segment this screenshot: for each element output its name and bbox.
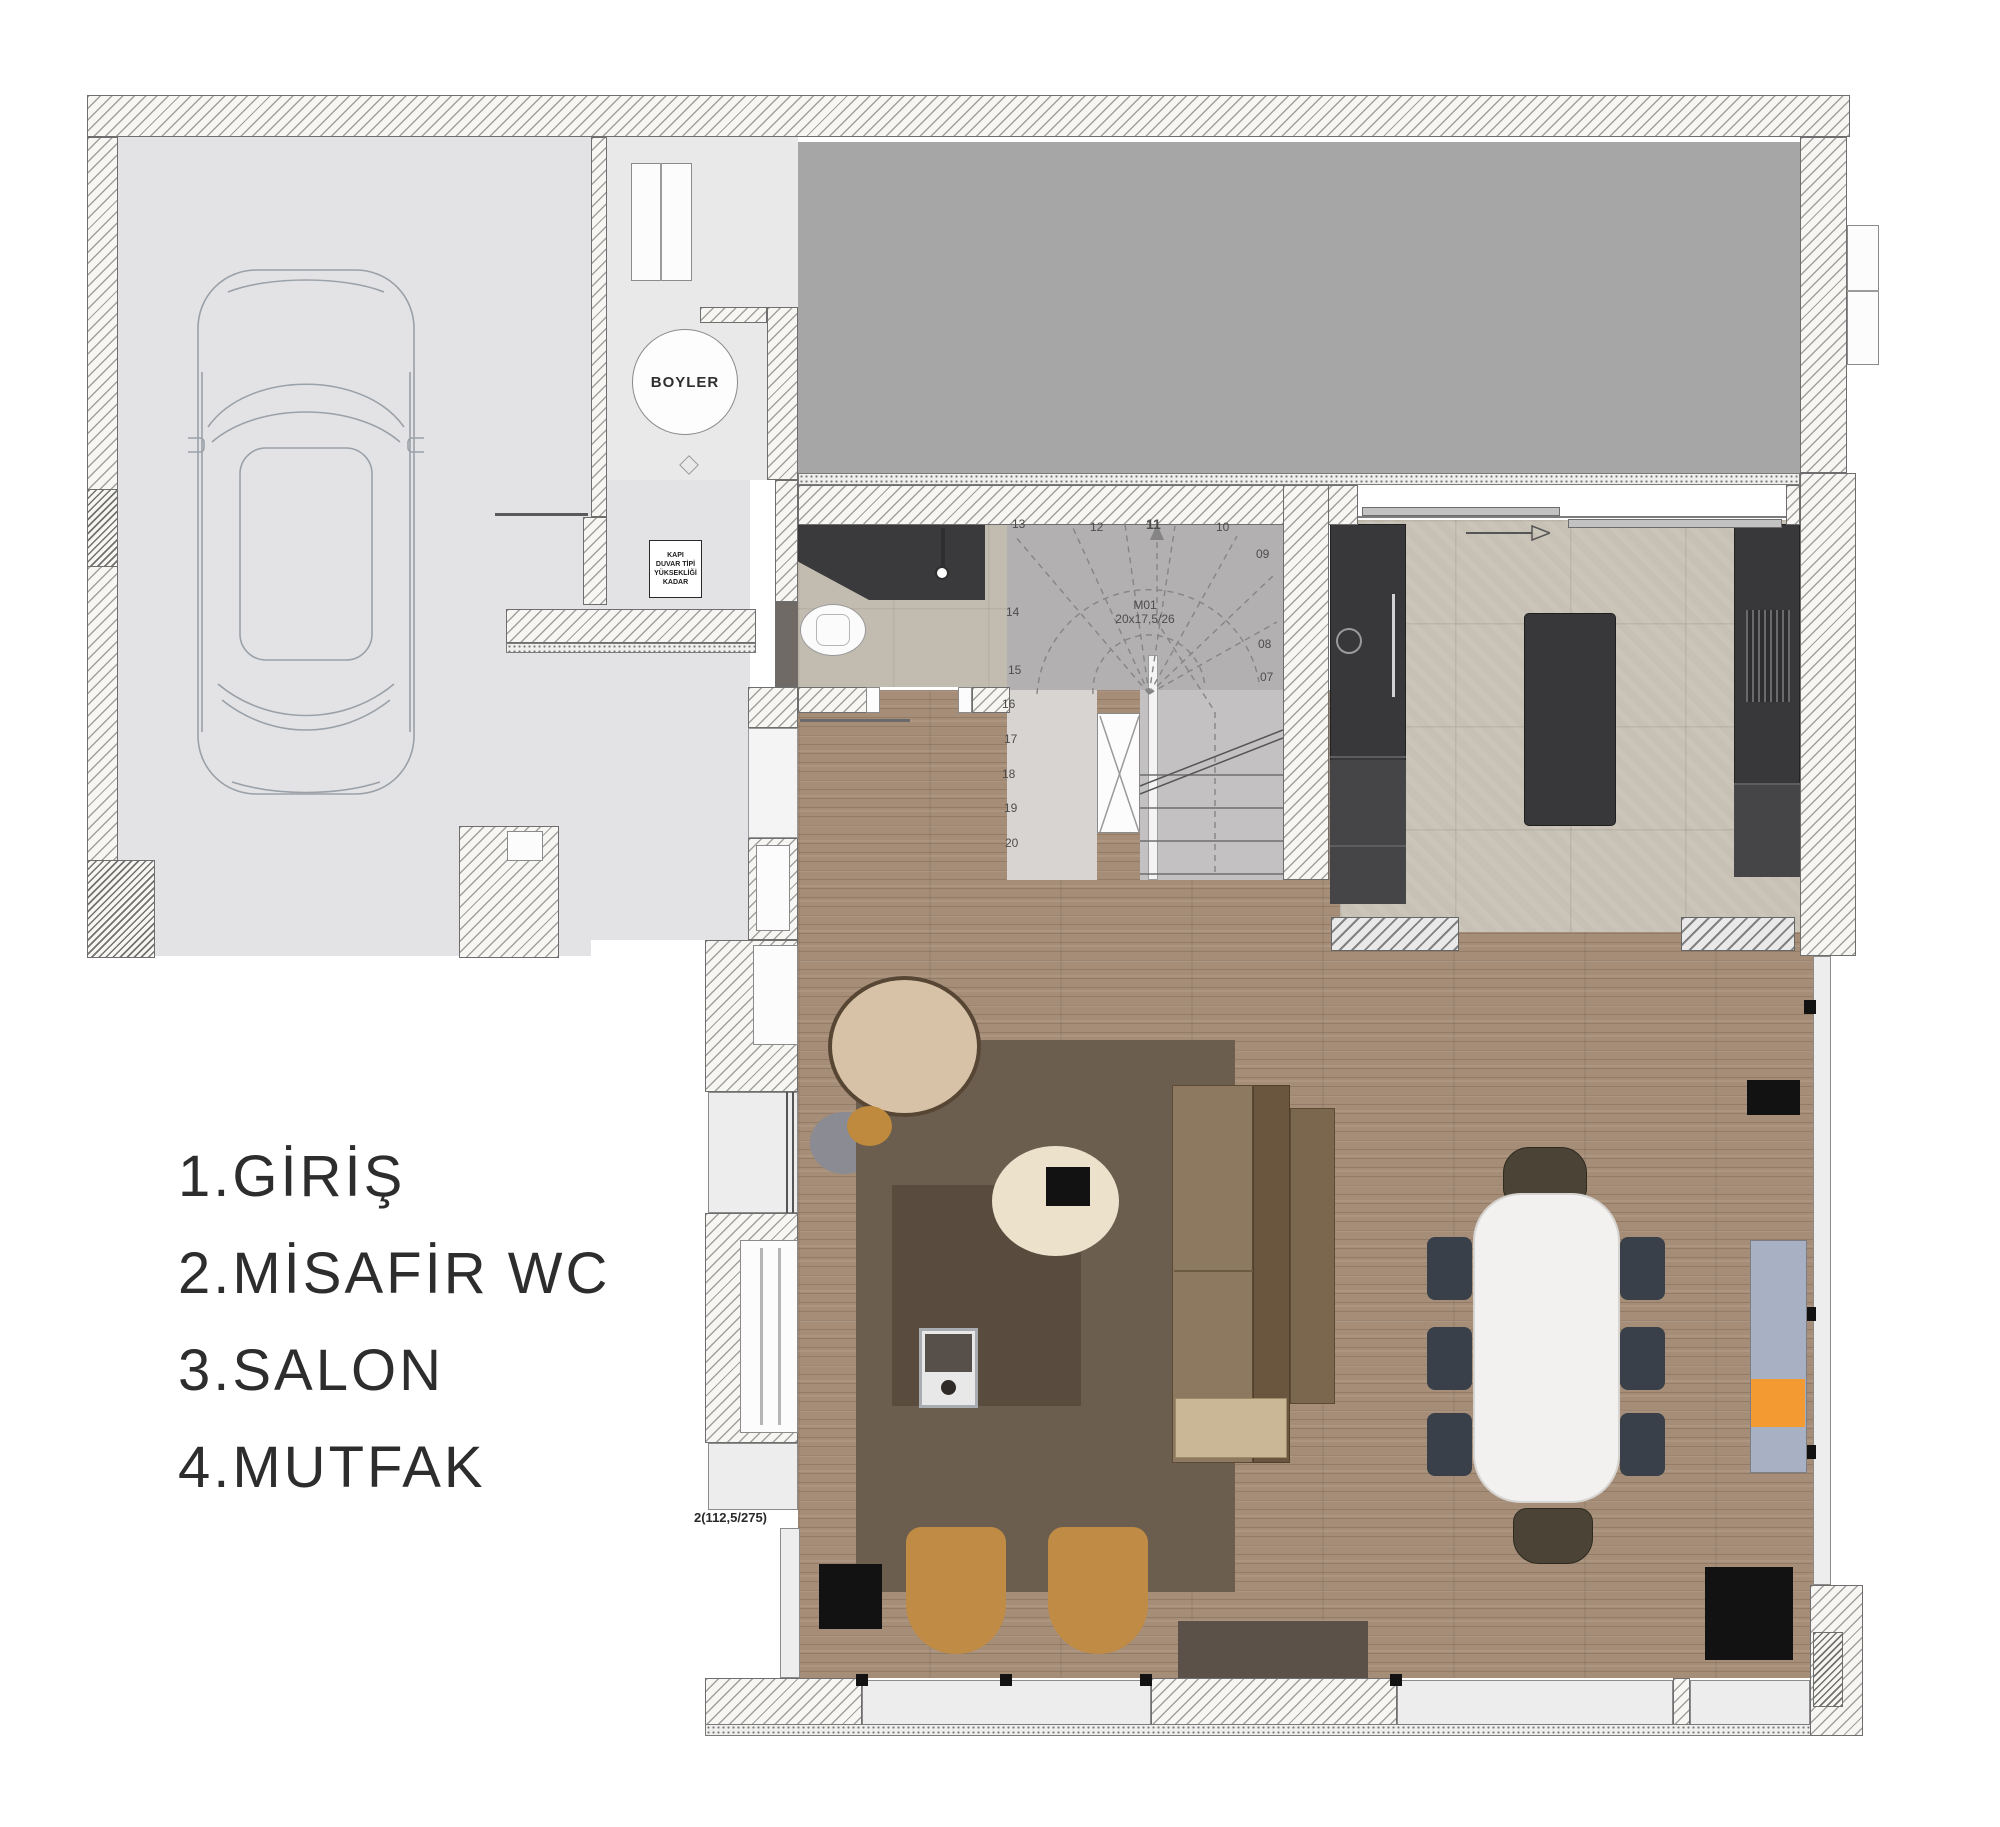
dining-chair xyxy=(1427,1237,1472,1300)
south-window-1 xyxy=(862,1680,1151,1726)
kitchen-sink-icon xyxy=(1336,628,1362,654)
stair-number-16: 16 xyxy=(1002,698,1015,710)
boiler-label: BOYLER xyxy=(651,374,720,391)
kitchen-sliding-door-panel-right xyxy=(1568,519,1782,528)
stair-number-19: 19 xyxy=(1004,802,1017,814)
floor-vent-ne xyxy=(1747,1080,1800,1115)
wall-vestibule-south xyxy=(506,609,756,643)
kitchen-cabinet-handle xyxy=(1392,594,1395,697)
wc-door-jamb-right xyxy=(958,687,972,713)
south-wall-insulation xyxy=(705,1724,1863,1736)
armchair-round xyxy=(828,976,981,1117)
wc-note-line-2: DUVAR TİPİ xyxy=(650,560,701,569)
legend-item-salon: 3.SALON xyxy=(178,1322,610,1419)
sideboard xyxy=(1750,1240,1807,1473)
west-window-band-low xyxy=(780,1528,800,1678)
stair-number-13: 13 xyxy=(1012,518,1025,530)
terrace-floor xyxy=(798,142,1800,473)
west-window-2 xyxy=(708,1443,798,1510)
wall-east-upper xyxy=(1800,137,1847,473)
wc-west-wall xyxy=(775,480,798,602)
west-window-1-glazing xyxy=(786,1092,794,1213)
kitchen-floor-grille-left xyxy=(1331,917,1459,951)
window-label-text: 2(112,5/275) xyxy=(694,1510,767,1525)
stair-number-15: 15 xyxy=(1008,664,1021,676)
stair-number-10: 10 xyxy=(1216,521,1229,533)
stair-detail-lines xyxy=(1007,522,1283,880)
east-window-hinge-1 xyxy=(1804,1000,1816,1014)
car-icon xyxy=(188,252,424,812)
kitchen-right-cabinet-lower xyxy=(1734,783,1800,877)
wc-toilet-seat xyxy=(816,614,850,646)
entry-wall-window xyxy=(756,845,790,931)
wc-note-line-4: KADAR xyxy=(650,578,701,587)
kitchen-island xyxy=(1524,613,1616,826)
ottoman-small xyxy=(847,1106,892,1146)
stair-number-08: 08 xyxy=(1258,638,1271,650)
garage-pier-window xyxy=(507,831,543,861)
kitchen-cabinet-divider2 xyxy=(1330,845,1406,847)
wall-north-interior-right xyxy=(1786,485,1800,525)
boiler-room-window-line xyxy=(660,163,662,281)
wall-stairs-east xyxy=(1283,485,1329,880)
floor-cushion-sw xyxy=(819,1564,882,1629)
fireplace-knob-icon xyxy=(941,1380,956,1395)
west-window-1 xyxy=(708,1092,798,1213)
west-pier-2-radiator-fin2 xyxy=(778,1248,781,1425)
east-window-band xyxy=(1813,956,1831,1585)
wall-north-interior xyxy=(798,485,1358,525)
south-mullion xyxy=(1673,1678,1690,1730)
sofa-seat-divider xyxy=(1174,1270,1253,1272)
fireplace-firebox xyxy=(925,1334,972,1372)
west-pier-1-window xyxy=(753,945,798,1045)
wall-east-kitchen xyxy=(1800,473,1856,956)
boiler-unit: BOYLER xyxy=(632,329,738,435)
stair-number-11: 11 xyxy=(1146,518,1161,530)
coffee-table-tray xyxy=(1046,1167,1090,1206)
south-pier-sw xyxy=(705,1678,862,1730)
stair-number-17: 17 xyxy=(1004,733,1017,745)
dining-chair xyxy=(1620,1327,1665,1390)
sliding-door-arrow-icon xyxy=(1466,524,1550,542)
sideboard-orange-drawer xyxy=(1751,1379,1805,1427)
dining-table xyxy=(1473,1193,1620,1503)
wc-south-wall-left xyxy=(798,687,872,713)
wc-wall-dark-finish xyxy=(775,600,798,687)
dining-chair xyxy=(1620,1413,1665,1476)
legend-item-misafir-wc: 2.MİSAFİR WC xyxy=(178,1225,610,1322)
dining-chair xyxy=(1427,1413,1472,1476)
south-pier-mid xyxy=(1151,1678,1397,1730)
wc-note-box: KAPI DUVAR TİPİ YÜKSEKLİĞİ KADAR xyxy=(649,540,702,598)
south-window-hinge-3 xyxy=(1140,1674,1152,1686)
garage-door-jamb xyxy=(583,517,607,605)
legend-item-giris: 1.GİRİŞ xyxy=(178,1128,610,1225)
stair-unit-label: M01 xyxy=(1085,598,1205,612)
bench-mat-south xyxy=(1178,1621,1368,1678)
sofa-end-cushion xyxy=(1175,1398,1287,1458)
south-window-hinge-4 xyxy=(1390,1674,1402,1686)
sofa xyxy=(1172,1085,1328,1463)
wc-note-line-3: YÜKSEKLİĞİ xyxy=(650,569,701,578)
wall-top xyxy=(87,95,1850,137)
kitchen-cabinet-divider xyxy=(1330,756,1406,758)
south-window-3 xyxy=(1690,1680,1810,1726)
south-window-2 xyxy=(1397,1680,1673,1726)
west-window-dimension-label: 2(112,5/275) xyxy=(694,1510,814,1525)
floor-cushion-se xyxy=(1705,1567,1793,1660)
stair-number-07: 07 xyxy=(1260,671,1273,683)
west-pier-2-radiator xyxy=(740,1240,798,1433)
stair-number-20: 20 xyxy=(1005,837,1018,849)
stool-right xyxy=(1048,1527,1148,1654)
wc-note-line-1: KAPI xyxy=(650,551,701,560)
stair-number-09: 09 xyxy=(1256,548,1269,560)
stool-left xyxy=(906,1527,1006,1654)
kitchen-oven-vent-icon xyxy=(1746,610,1790,702)
garage-corner-pier-sw xyxy=(87,860,155,958)
kitchen-sliding-door-panel-left xyxy=(1362,507,1560,516)
wall-boiler-stub xyxy=(700,307,767,323)
entry-door-leaf xyxy=(800,719,910,722)
kitchen-left-cabinet-lower xyxy=(1330,760,1406,904)
stair-number-14: 14 xyxy=(1006,606,1019,618)
garage-door-leaf xyxy=(495,513,588,516)
wc-door-jamb-left xyxy=(866,687,880,713)
dining-head-chair-south xyxy=(1513,1508,1593,1564)
wall-vestibule-south-insulation xyxy=(506,643,756,653)
floor-plan-canvas: 2(112,5/275) BOYLER KAPI DUVAR TİPİ YÜKS… xyxy=(0,0,2000,1827)
dining-chair xyxy=(1427,1327,1472,1390)
wall-left-pillar xyxy=(87,489,118,567)
south-window-hinge-2 xyxy=(1000,1674,1012,1686)
legend-item-mutfak: 4.MUTFAK xyxy=(178,1419,610,1516)
wall-garage-boiler xyxy=(591,137,607,517)
wall-boiler-right xyxy=(767,307,798,480)
kitchen-sliding-door-track xyxy=(1358,516,1786,518)
stair-spec: M01 20x17,5/26 xyxy=(1085,598,1205,626)
sofa-chaise-panel xyxy=(1290,1108,1335,1404)
entry-wall-upper xyxy=(748,687,798,728)
dining-chair xyxy=(1620,1237,1665,1300)
stair-dimension-label: 20x17,5/26 xyxy=(1085,612,1205,626)
legend: 1.GİRİŞ 2.MİSAFİR WC 3.SALON 4.MUTFAK xyxy=(178,1128,610,1516)
east-exterior-column xyxy=(1847,225,1879,365)
stair-number-18: 18 xyxy=(1002,768,1015,780)
south-window-hinge-1 xyxy=(856,1674,868,1686)
wc-faucet-dot xyxy=(935,566,949,580)
corner-pier-se-core xyxy=(1813,1632,1843,1707)
kitchen-floor-grille-right xyxy=(1681,917,1795,951)
stair-number-12: 12 xyxy=(1090,521,1103,533)
terrace-edge-insulation xyxy=(798,473,1800,485)
wc-faucet-icon xyxy=(941,528,945,568)
west-pier-2-radiator-fin xyxy=(760,1248,763,1425)
east-exterior-column-line xyxy=(1847,290,1879,292)
entry-door-opening xyxy=(748,728,798,838)
